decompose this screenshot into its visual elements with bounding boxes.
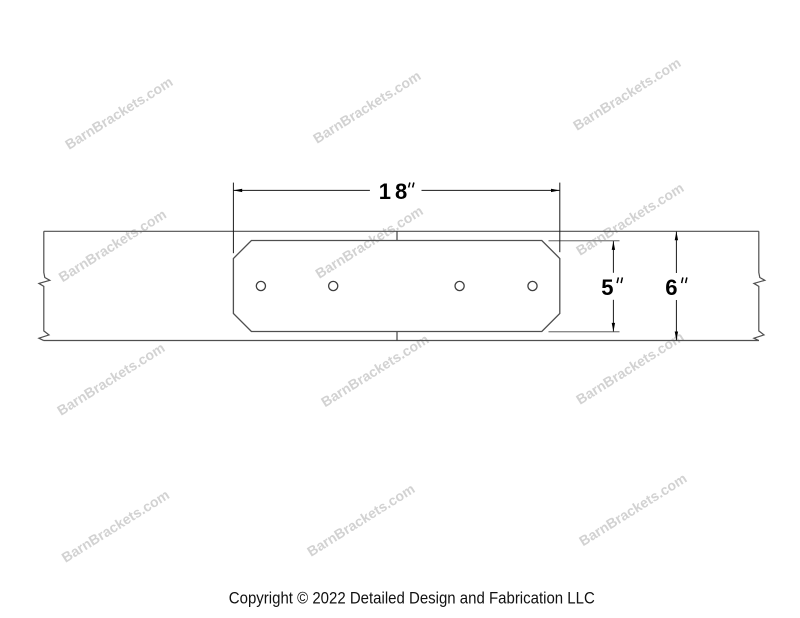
- svg-text:Copyright © 2022 Detailed Desi: Copyright © 2022 Detailed Design and Fab…: [229, 590, 595, 608]
- svg-text:6: 6: [665, 275, 677, 300]
- svg-text:18: 18: [379, 179, 411, 204]
- svg-text:5: 5: [601, 275, 613, 300]
